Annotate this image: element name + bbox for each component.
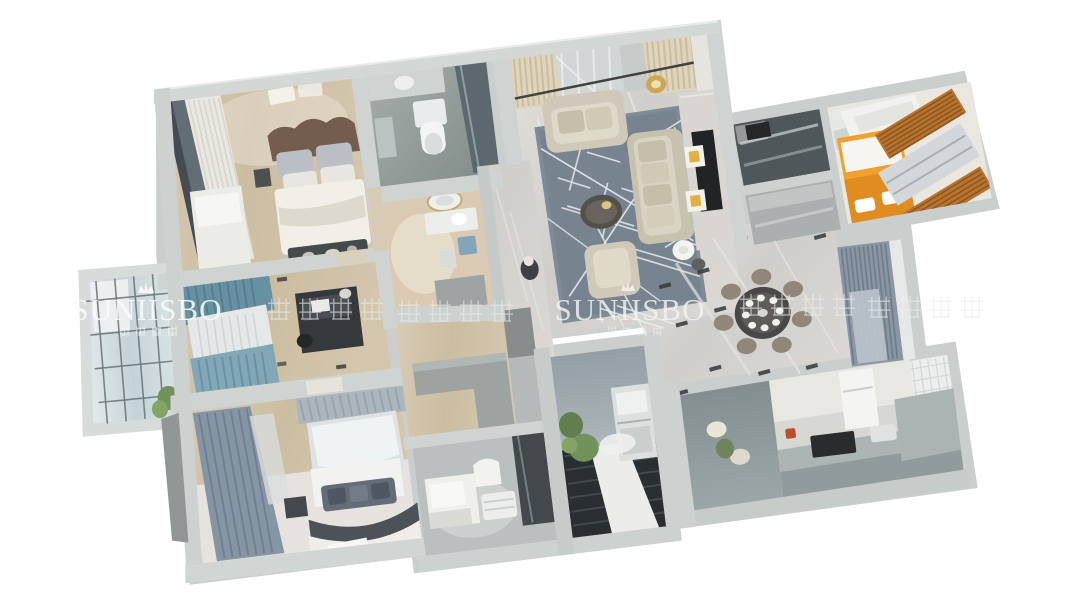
- svg-text:SUNIISBO: SUNIISBO: [555, 292, 706, 327]
- svg-text:SUNIISBO: SUNIISBO: [72, 292, 223, 327]
